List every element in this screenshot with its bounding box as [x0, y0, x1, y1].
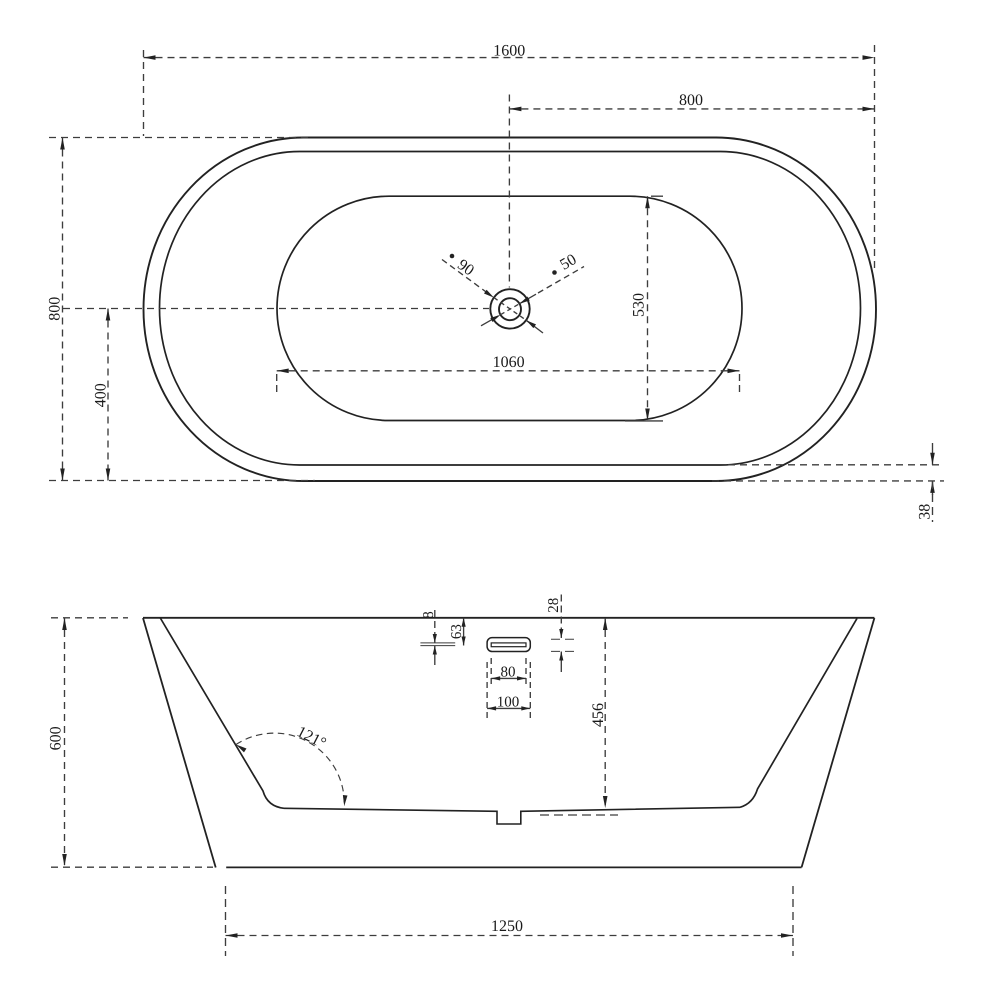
svg-text:456: 456 [590, 703, 607, 727]
svg-text:600: 600 [48, 726, 65, 750]
svg-text:1250: 1250 [491, 918, 523, 935]
svg-text:80: 80 [501, 665, 516, 681]
svg-text:63: 63 [449, 624, 465, 639]
svg-text:1600: 1600 [493, 42, 525, 59]
svg-text:1060: 1060 [493, 354, 525, 371]
svg-text:28: 28 [546, 598, 562, 613]
svg-text:38: 38 [917, 504, 934, 520]
svg-text:400: 400 [93, 383, 110, 407]
svg-text:530: 530 [631, 293, 648, 317]
svg-text:100: 100 [497, 695, 520, 711]
svg-text:8: 8 [421, 611, 437, 619]
svg-text:800: 800 [47, 297, 64, 321]
svg-text:800: 800 [679, 92, 703, 109]
